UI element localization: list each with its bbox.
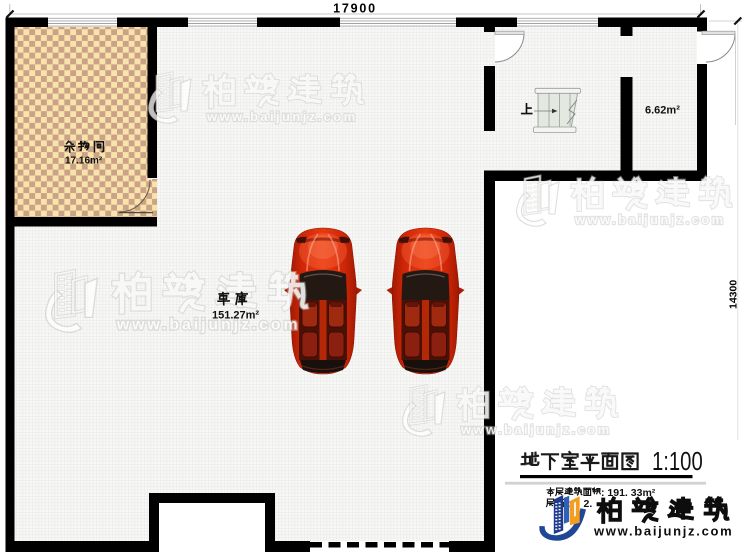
svg-text:1:100: 1:100 [652, 447, 703, 476]
svg-text:17900: 17900 [333, 2, 377, 16]
svg-text:2.: 2. [584, 498, 593, 510]
svg-text:14300: 14300 [728, 280, 740, 309]
svg-text:17.16m²: 17.16m² [65, 156, 103, 167]
svg-text:www.baijunjz.com: www.baijunjz.com [593, 524, 733, 539]
svg-text:151.27m²: 151.27m² [212, 310, 259, 322]
svg-text:6.62m²: 6.62m² [645, 105, 680, 117]
